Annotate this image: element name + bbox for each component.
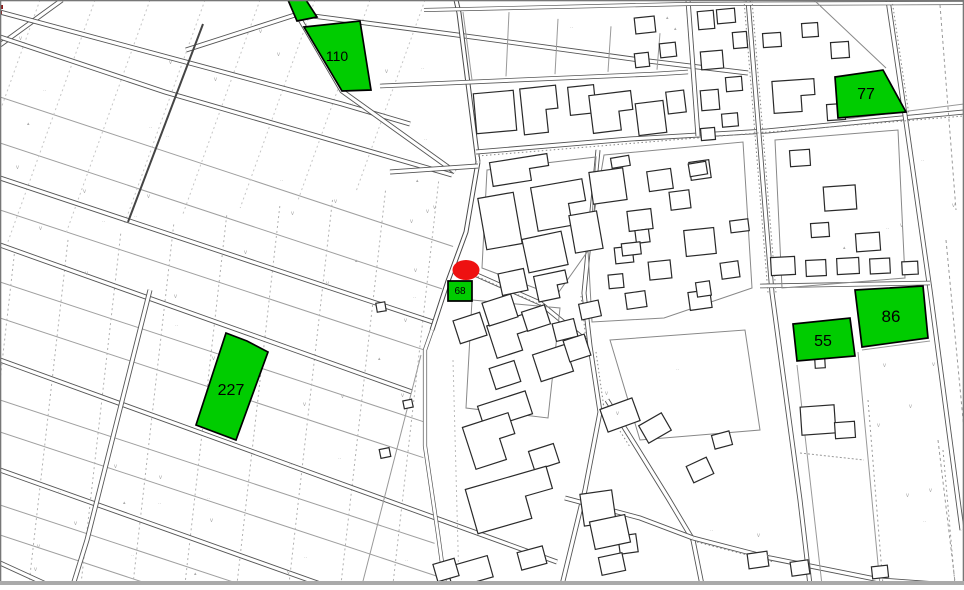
svg-text:v: v — [74, 521, 77, 527]
svg-text:··: ·· — [58, 489, 62, 495]
svg-text:··: ·· — [338, 456, 342, 462]
svg-text:··: ·· — [570, 25, 574, 31]
svg-text:v: v — [159, 475, 162, 481]
svg-text:··: ·· — [102, 219, 106, 225]
svg-text:v: v — [932, 362, 935, 368]
svg-text:v: v — [303, 402, 306, 408]
svg-text:v: v — [401, 393, 404, 399]
svg-text:v: v — [616, 411, 619, 417]
svg-text:v: v — [426, 209, 429, 215]
svg-text:v: v — [169, 60, 172, 66]
svg-text:v: v — [210, 518, 213, 524]
svg-text:v: v — [214, 77, 217, 83]
svg-text:v: v — [174, 294, 177, 300]
svg-text:··: ·· — [405, 558, 409, 564]
svg-text:v: v — [37, 544, 40, 550]
svg-text:v: v — [334, 199, 337, 205]
svg-text:··: ·· — [166, 134, 170, 140]
svg-text:v: v — [757, 533, 760, 539]
svg-text:v: v — [39, 226, 42, 232]
svg-text:v: v — [605, 391, 608, 397]
svg-text:··: ·· — [207, 496, 211, 502]
svg-text:v: v — [16, 165, 19, 171]
svg-text:v: v — [929, 488, 932, 494]
svg-text:v: v — [19, 36, 22, 42]
svg-text:v: v — [326, 281, 329, 287]
svg-text:v: v — [259, 29, 262, 35]
svg-text:v: v — [34, 567, 37, 573]
svg-text:v: v — [212, 356, 215, 362]
svg-text:v: v — [385, 69, 388, 75]
svg-text:v: v — [341, 394, 344, 400]
svg-text:v: v — [900, 223, 903, 229]
svg-text:v: v — [244, 250, 247, 256]
svg-text:v: v — [952, 203, 955, 209]
svg-text:··: ·· — [421, 66, 425, 72]
svg-text:··: ·· — [51, 357, 55, 363]
svg-text:55: 55 — [814, 333, 832, 350]
svg-text:v: v — [85, 271, 88, 277]
svg-text:v: v — [906, 493, 909, 499]
svg-text:v: v — [287, 570, 290, 576]
svg-text:110: 110 — [326, 48, 349, 64]
svg-text:v: v — [147, 194, 150, 200]
svg-text:v: v — [767, 554, 770, 560]
svg-text:··: ·· — [158, 501, 162, 507]
svg-text:··: ·· — [923, 519, 927, 525]
svg-text:v: v — [404, 318, 407, 324]
svg-text:v: v — [877, 423, 880, 429]
svg-text:··: ·· — [304, 555, 308, 561]
svg-text:··: ·· — [134, 214, 138, 220]
svg-text:68: 68 — [454, 286, 466, 297]
svg-text:··: ·· — [424, 137, 428, 143]
svg-text:227: 227 — [218, 382, 245, 399]
svg-text:··: ·· — [921, 158, 925, 164]
svg-text:··: ·· — [43, 88, 47, 94]
svg-text:v: v — [909, 404, 912, 410]
svg-text:··: ·· — [131, 553, 135, 559]
svg-text:v: v — [114, 464, 117, 470]
svg-text:77: 77 — [857, 86, 875, 103]
svg-text:86: 86 — [882, 307, 901, 326]
svg-text:··: ·· — [710, 528, 714, 534]
svg-text:v: v — [433, 205, 436, 211]
svg-text:v: v — [291, 211, 294, 217]
svg-text:··: ·· — [350, 101, 354, 107]
svg-text:v: v — [410, 219, 413, 225]
svg-text:··: ·· — [413, 295, 417, 301]
svg-text:··: ·· — [280, 178, 284, 184]
svg-text:v: v — [83, 189, 86, 195]
svg-text:v: v — [414, 268, 417, 274]
svg-text:··: ·· — [149, 125, 153, 131]
svg-text:v: v — [883, 363, 886, 369]
svg-text:v: v — [277, 52, 280, 58]
svg-text:··: ·· — [886, 226, 890, 232]
svg-text:··: ·· — [175, 323, 179, 329]
svg-text:··: ·· — [676, 367, 680, 373]
svg-text:··: ·· — [289, 462, 293, 468]
